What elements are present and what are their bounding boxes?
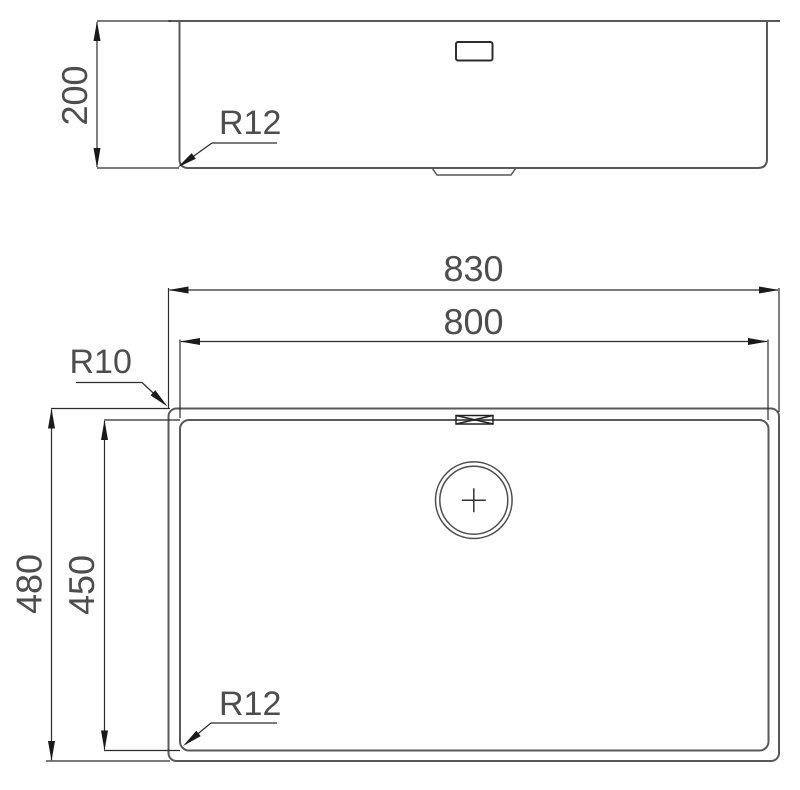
svg-text:830: 830	[443, 248, 503, 289]
svg-text:R12: R12	[219, 685, 281, 723]
svg-text:800: 800	[443, 301, 503, 342]
svg-text:450: 450	[61, 555, 102, 615]
svg-text:480: 480	[9, 554, 50, 614]
svg-text:R10: R10	[70, 343, 132, 381]
svg-text:R12: R12	[219, 104, 281, 142]
svg-text:200: 200	[54, 65, 95, 125]
